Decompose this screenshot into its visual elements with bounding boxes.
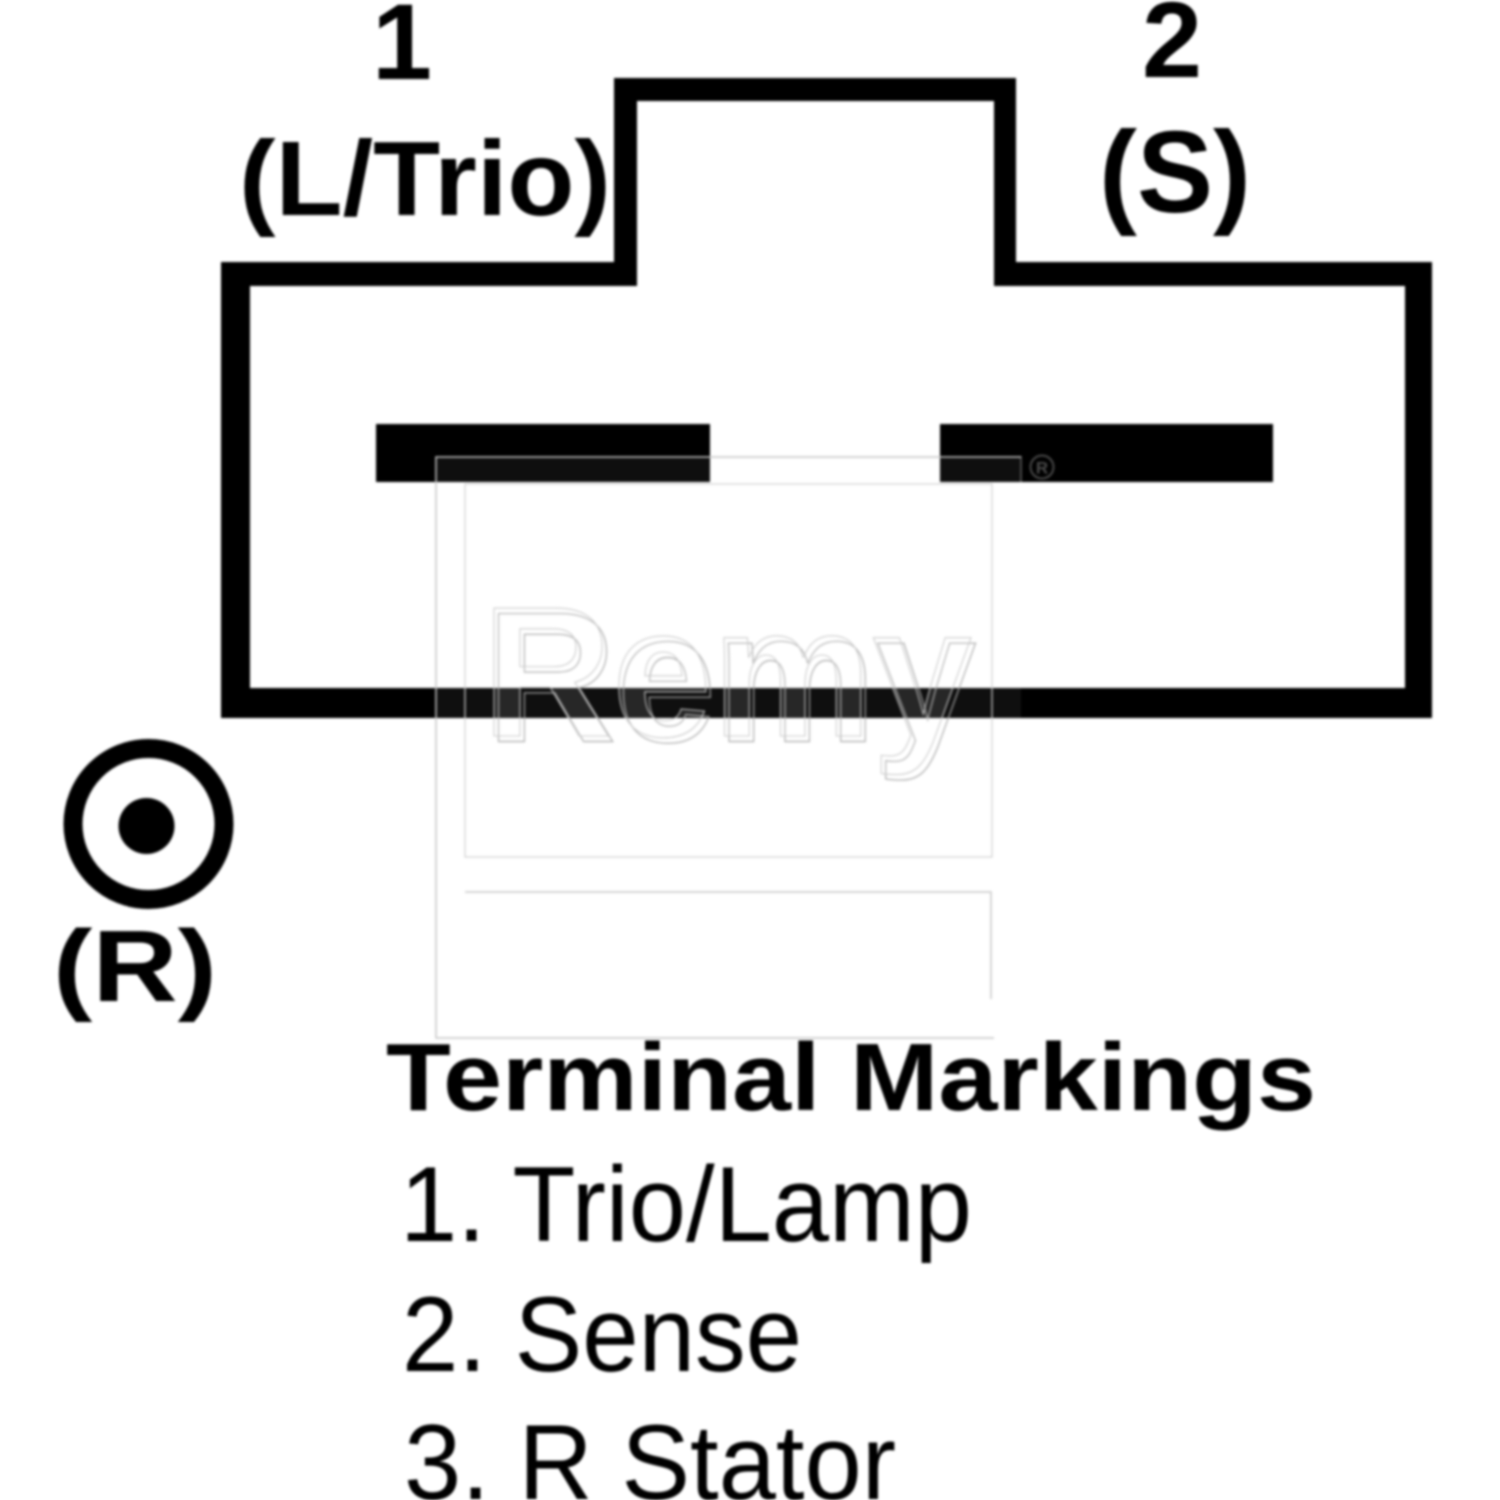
svg-text:(R): (R) (53, 911, 217, 1023)
svg-text:1. Trio/Lamp: 1. Trio/Lamp (400, 1144, 972, 1264)
svg-text:3. R Stator: 3. R Stator (404, 1402, 896, 1500)
svg-text:2. Sense: 2. Sense (402, 1274, 802, 1394)
svg-text:Terminal Markings: Terminal Markings (386, 1024, 1316, 1131)
svg-text:2: 2 (1142, 0, 1202, 100)
svg-text:1: 1 (372, 0, 432, 102)
svg-text:(S): (S) (1099, 107, 1251, 237)
svg-text:R: R (1036, 459, 1048, 478)
svg-text:Remy: Remy (482, 569, 972, 776)
svg-text:(L/Trio): (L/Trio) (239, 120, 611, 238)
